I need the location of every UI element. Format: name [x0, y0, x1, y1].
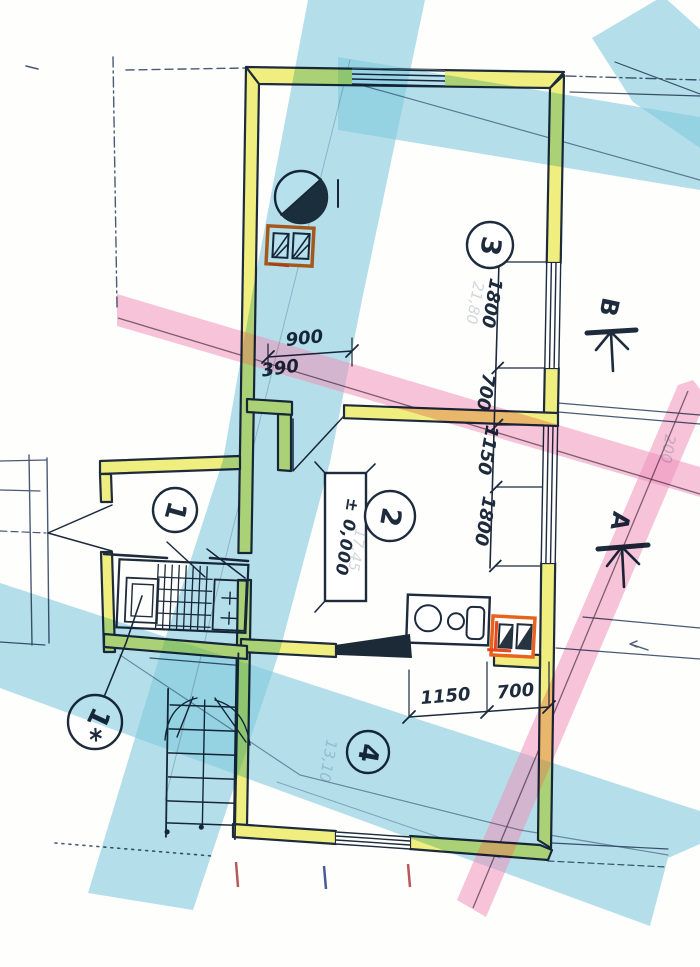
dim-bottom-700: 700: [496, 679, 535, 703]
benchmark-b: B: [587, 295, 636, 371]
dimension-chain-bottom: 1150 700: [403, 662, 555, 723]
window-right-1: [545, 263, 561, 368]
small-arrow-mark: [630, 641, 648, 650]
floor-plan-scan: 1800 700 1150 1800 900 390 1150 700: [0, 0, 700, 967]
boundary-dashed-top: [126, 68, 246, 70]
wall-bottom-left: [233, 824, 336, 844]
benchmark-b-symbol: [596, 333, 628, 371]
counter-wedge: [335, 634, 412, 658]
dim-right-1800b: 1800: [470, 494, 499, 547]
entry-door-swing: [48, 505, 112, 551]
tick-mark-topleft: [26, 66, 38, 69]
utility-dash-blue: [324, 866, 326, 889]
neighbor-line-h2: [0, 490, 40, 491]
boundary-dashdot-left: [113, 57, 117, 307]
utility-dash-red-2: [408, 864, 410, 887]
annex-wall-left-upper: [100, 474, 112, 502]
chimney-room2: [487, 616, 535, 657]
annex-mid-wall-left: [104, 554, 167, 558]
floor-plan-drawing: 1800 700 1150 1800 900 390 1150 700: [0, 0, 700, 967]
neighbor-line-h1: [0, 460, 47, 461]
benchmark-b-label: B: [593, 295, 624, 319]
annex-wall-top: [100, 456, 240, 474]
stove-symbol: [406, 595, 490, 646]
neighbor-line-dashed: [0, 531, 46, 533]
utility-dash-red-1: [236, 862, 238, 887]
dim-bottom-1150: 1150: [420, 684, 472, 709]
